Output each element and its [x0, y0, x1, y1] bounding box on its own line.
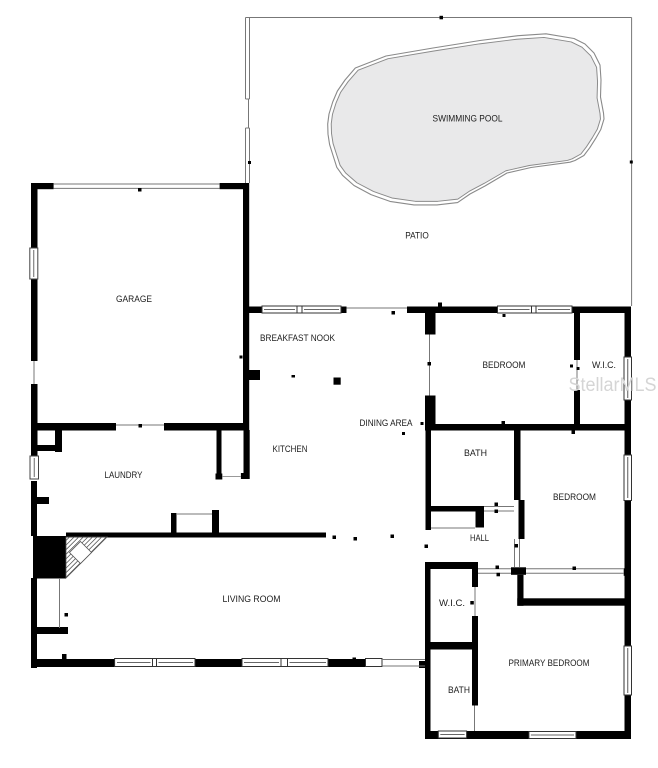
svg-text:HALL: HALL: [470, 533, 489, 543]
svg-text:W.I.C.: W.I.C.: [592, 360, 616, 370]
svg-text:PRIMARY BEDROOM: PRIMARY BEDROOM: [509, 658, 590, 668]
svg-text:KITCHEN: KITCHEN: [273, 444, 308, 454]
svg-text:BEDROOM: BEDROOM: [553, 492, 596, 502]
svg-text:StellarMLS: StellarMLS: [569, 375, 657, 396]
svg-text:GARAGE: GARAGE: [116, 294, 152, 304]
svg-text:BEDROOM: BEDROOM: [483, 360, 526, 370]
svg-text:LIVING ROOM: LIVING ROOM: [223, 594, 281, 604]
svg-text:SWIMMING POOL: SWIMMING POOL: [433, 114, 503, 124]
svg-text:BREAKFAST NOOK: BREAKFAST NOOK: [260, 333, 336, 343]
svg-text:W.I.C.: W.I.C.: [439, 598, 465, 608]
svg-text:PATIO: PATIO: [405, 230, 429, 240]
svg-text:BATH: BATH: [464, 448, 487, 458]
svg-text:DINING AREA: DINING AREA: [360, 418, 414, 428]
svg-text:BATH: BATH: [448, 685, 470, 695]
svg-text:LAUNDRY: LAUNDRY: [105, 470, 143, 480]
